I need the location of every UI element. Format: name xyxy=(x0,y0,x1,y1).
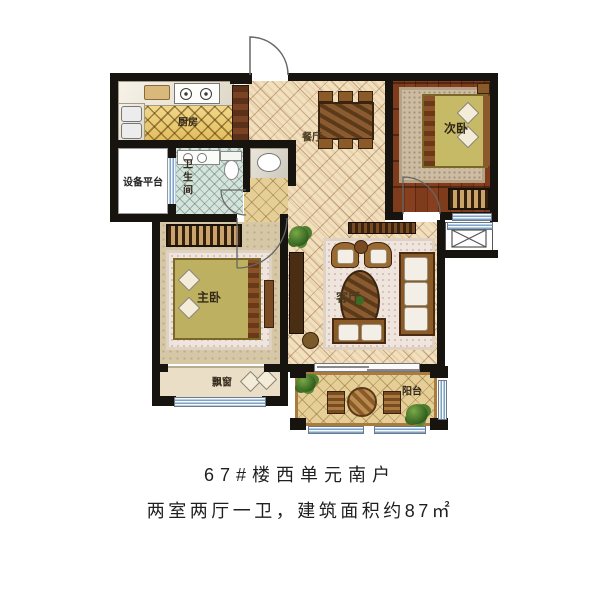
bed-bench xyxy=(264,280,274,328)
wall-master-top xyxy=(160,214,237,222)
armchair xyxy=(364,242,392,268)
ac-platform-window xyxy=(447,222,493,230)
wall-master-living xyxy=(280,214,288,406)
stove-icon xyxy=(174,83,220,104)
balcony-window-glass xyxy=(374,426,426,434)
tv-cabinet xyxy=(289,252,304,334)
wall-right-outer xyxy=(490,73,498,222)
living-room-label: 客厅 xyxy=(336,289,360,306)
master-bedroom-label: 主卧 xyxy=(197,289,221,306)
wall-bay-stub-left xyxy=(152,364,168,372)
balcony-corner-block xyxy=(430,366,448,378)
wall-living-right xyxy=(437,220,445,372)
side-table xyxy=(354,240,368,254)
dining-chair xyxy=(358,138,373,149)
equipment-platform-label: 设备平台 xyxy=(123,174,163,189)
bay-window-sill-line xyxy=(168,366,264,368)
floor-plan-page: 厨房 餐厅 次卧 设备平台 卫生间 主卧 客厅 飘窗 阳台 67#楼西单元南户 … xyxy=(0,0,600,600)
dining-chair xyxy=(338,91,353,102)
kitchen-label: 厨房 xyxy=(178,114,198,129)
bay-window-glass xyxy=(174,397,266,407)
headboard xyxy=(483,96,490,166)
sofa xyxy=(399,252,435,336)
vanity-sink-icon xyxy=(257,153,281,172)
basin-icon xyxy=(197,153,207,163)
equipment-window-glass xyxy=(168,158,176,204)
entrance-door-arc xyxy=(250,37,288,75)
wall-secondary-left xyxy=(385,81,393,212)
secondary-nightstand xyxy=(477,83,490,94)
bed-foot-slats xyxy=(248,260,259,338)
master-wardrobe xyxy=(166,224,242,247)
console-cabinet xyxy=(348,222,416,234)
entry-cabinet xyxy=(232,85,249,141)
plant-icon xyxy=(406,404,428,424)
caption-line-1: 67#楼西单元南户 xyxy=(0,461,600,487)
secondary-wardrobe xyxy=(448,188,490,210)
wall-entry-block xyxy=(230,73,252,84)
dining-room-label: 餐厅 xyxy=(302,129,322,144)
wall-bath-wash xyxy=(243,148,250,192)
cutting-board-icon xyxy=(144,85,170,100)
balcony-chair xyxy=(383,391,401,414)
dining-chair xyxy=(358,91,373,102)
balcony-sliding-door xyxy=(314,363,420,372)
plant-icon xyxy=(289,226,309,246)
dining-chair xyxy=(318,91,333,102)
kitchen-sink-icon xyxy=(121,106,142,122)
wall-wash-dining xyxy=(288,140,296,186)
toilet-bowl-icon xyxy=(224,160,239,180)
balcony-corner-block xyxy=(290,418,306,430)
wall-top-right xyxy=(288,73,498,81)
wall-secondary-bottom-a xyxy=(385,212,403,220)
bathroom-label: 卫生间 xyxy=(179,159,194,198)
wall-bay-bottom-left xyxy=(152,396,176,406)
wall-below-ac xyxy=(437,250,498,258)
burner-icon xyxy=(200,88,212,100)
secondary-window-glass xyxy=(452,213,492,221)
balcony-chair xyxy=(327,391,345,414)
caption-line-2: 两室两厅一卫，建筑面积约87㎡ xyxy=(0,497,600,523)
balcony-window-glass xyxy=(308,426,364,434)
wall-bay-stub-right xyxy=(264,364,288,372)
wall-top-left xyxy=(110,73,250,81)
balcony-side-window xyxy=(438,380,447,420)
bed-foot-slats xyxy=(424,96,435,166)
kitchen-sink-icon xyxy=(121,123,142,139)
secondary-bedroom-label: 次卧 xyxy=(444,120,468,137)
bay-window-label: 飘窗 xyxy=(212,374,232,389)
wall-master-left xyxy=(152,214,160,406)
stool xyxy=(302,332,319,349)
burner-icon xyxy=(180,88,192,100)
bench xyxy=(332,318,386,344)
dining-chair xyxy=(338,138,353,149)
wall-kitchen-bath xyxy=(110,140,296,148)
dining-table xyxy=(318,102,374,140)
balcony-corner-block xyxy=(290,366,306,378)
balcony-label: 阳台 xyxy=(402,383,422,398)
balcony-table xyxy=(347,387,377,417)
